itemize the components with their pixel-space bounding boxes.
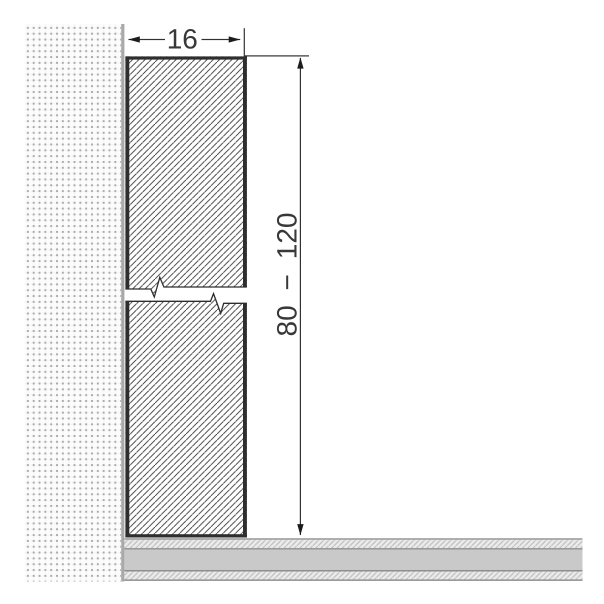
svg-text:16: 16	[167, 24, 198, 55]
svg-text:80 − 120: 80 − 120	[271, 213, 302, 337]
